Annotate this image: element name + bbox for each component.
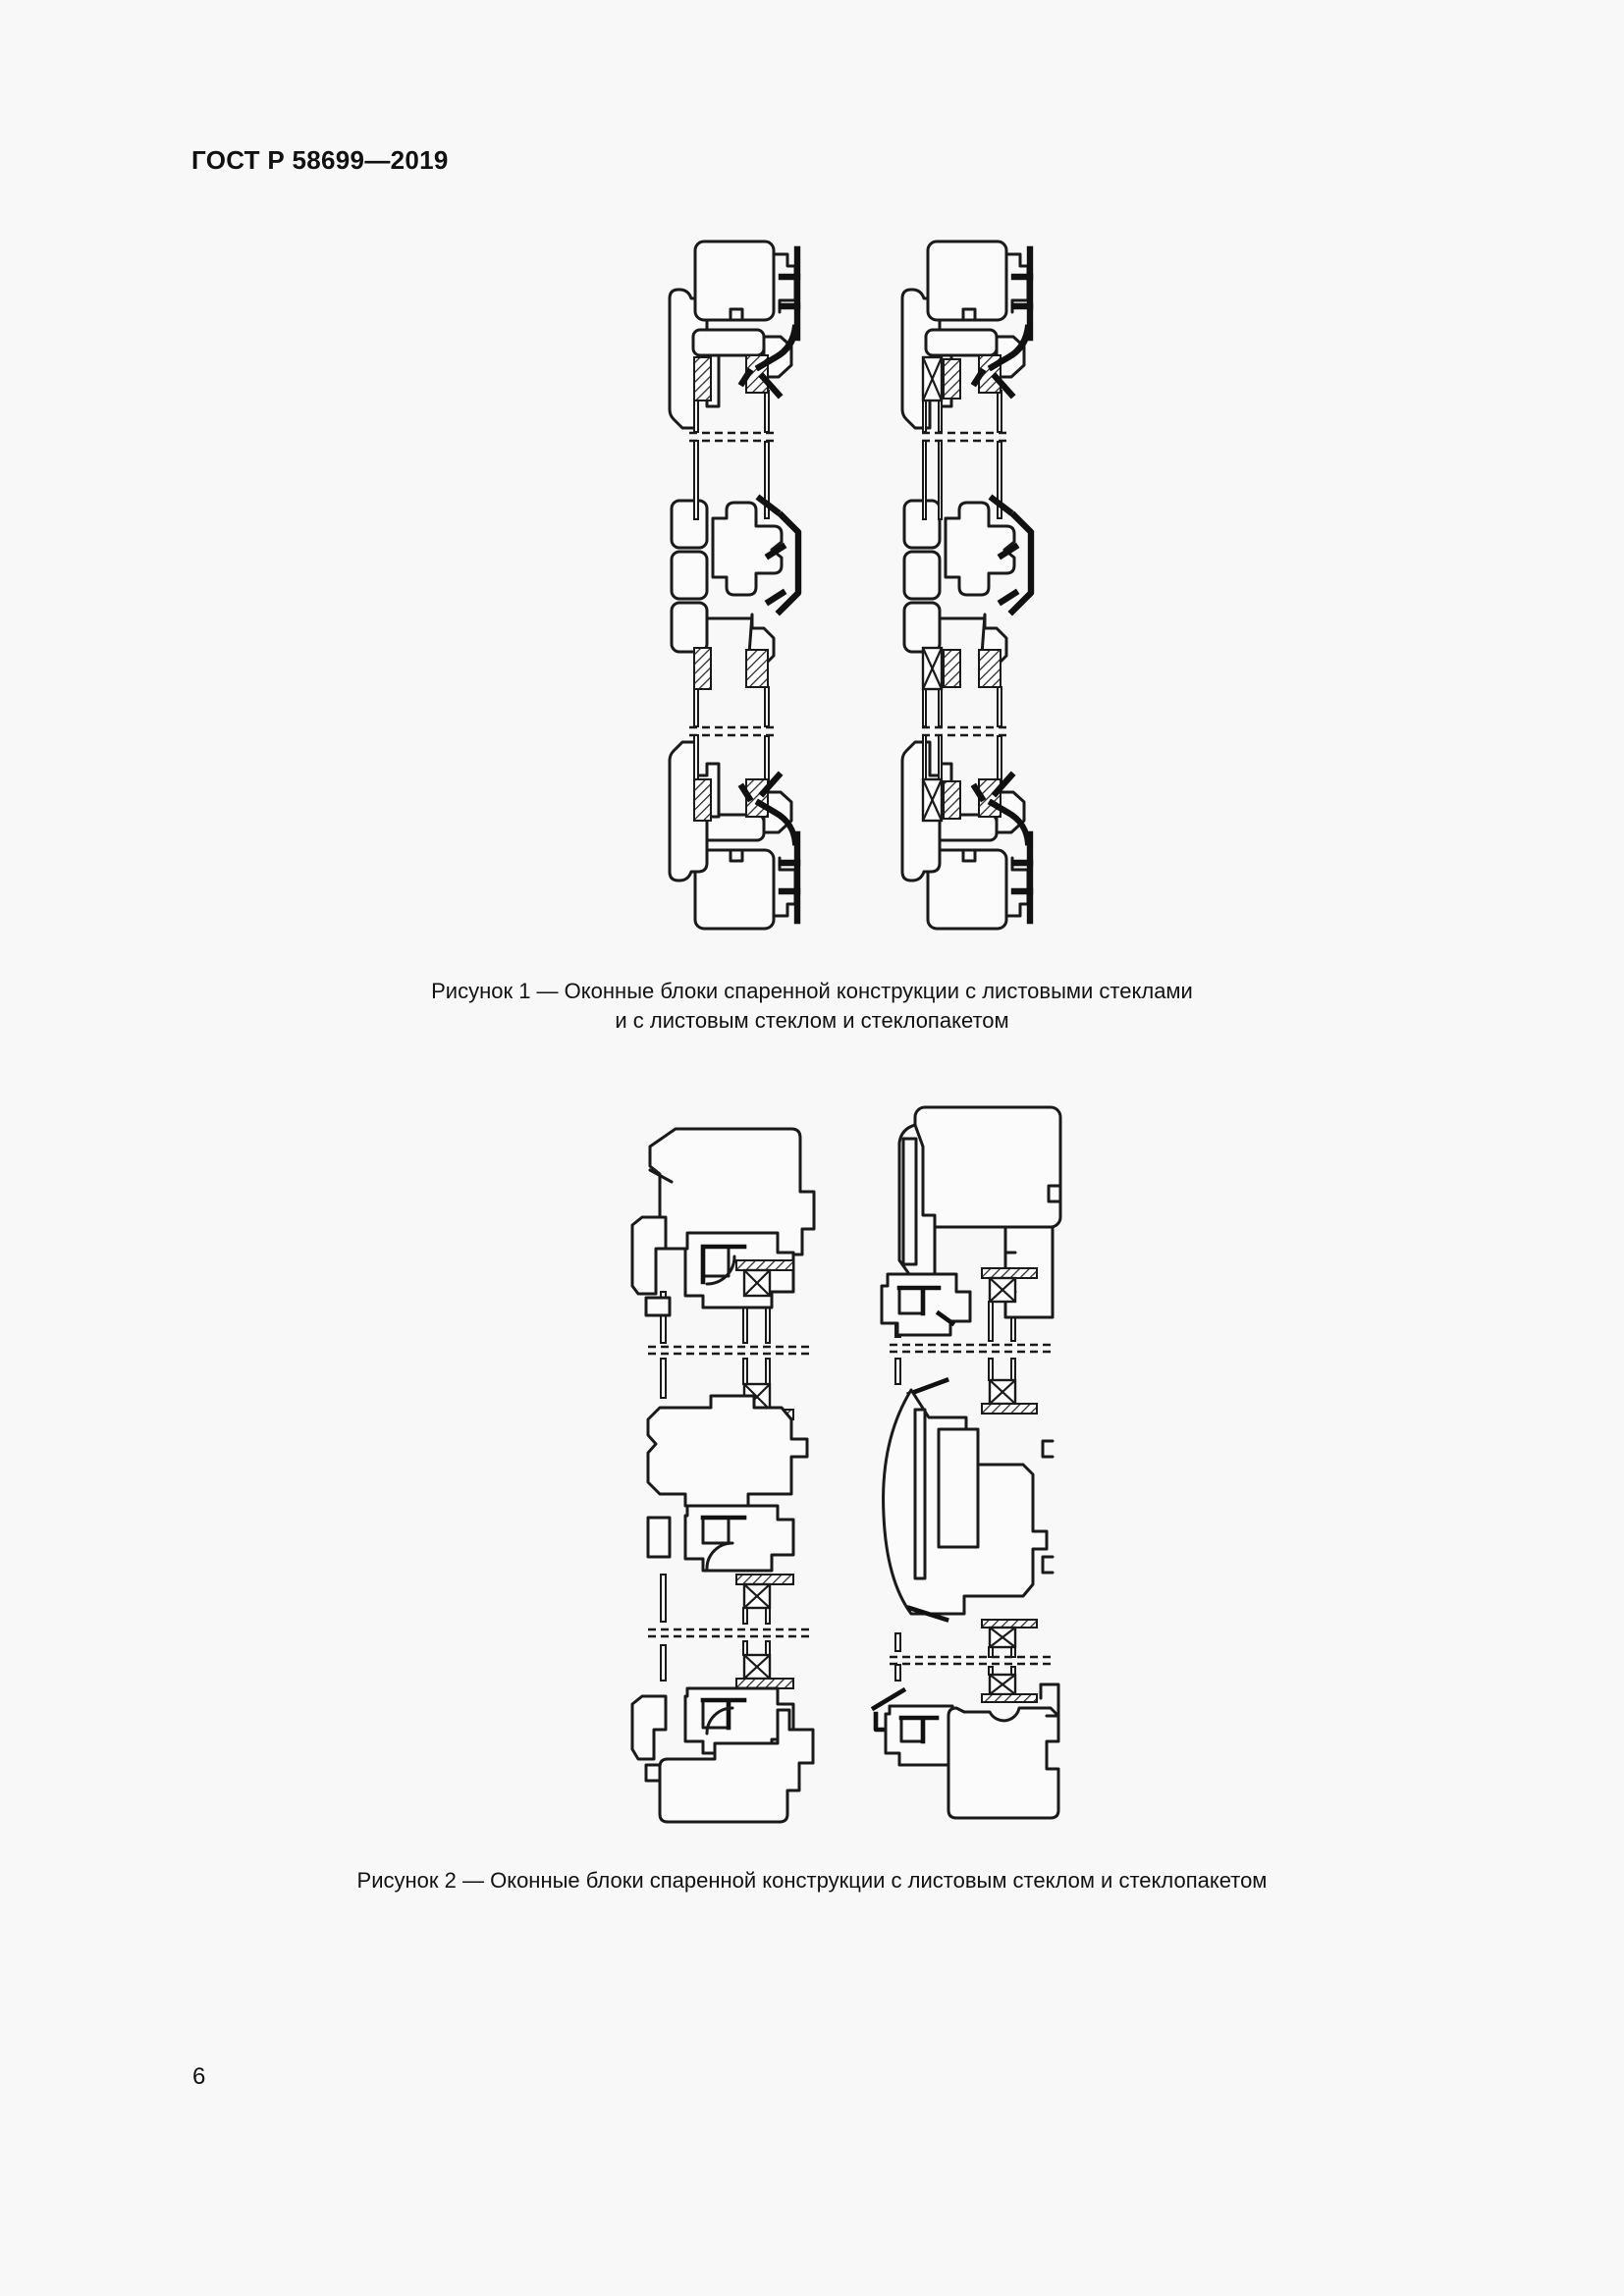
fig2-column-left [632, 1129, 814, 1822]
figure-1-caption-line1: Рисунок 1 — Оконные блоки спаренной конс… [0, 977, 1624, 1006]
figure-2-caption-line: Рисунок 2 — Оконные блоки спаренной конс… [0, 1866, 1624, 1896]
document-page: { "document": { "standard_code": "ГОСТ Р… [0, 0, 1624, 2296]
figure-2-caption: Рисунок 2 — Оконные блоки спаренной конс… [0, 1866, 1624, 1896]
page-number: 6 [192, 2063, 205, 2091]
standard-designation: ГОСТ Р 58699—2019 [191, 145, 449, 176]
figure-1-drawing [648, 234, 1041, 936]
fig2-column-right [874, 1107, 1060, 1818]
fig1-column-sheet-glass [670, 241, 798, 929]
figure-1-caption-line2: и с листовым стеклом и стеклопакетом [0, 1006, 1624, 1036]
figure-2-drawing [609, 1095, 1080, 1834]
figure-1-caption: Рисунок 1 — Оконные блоки спаренной конс… [0, 977, 1624, 1036]
fig1-column-glazing-unit [902, 241, 1031, 929]
